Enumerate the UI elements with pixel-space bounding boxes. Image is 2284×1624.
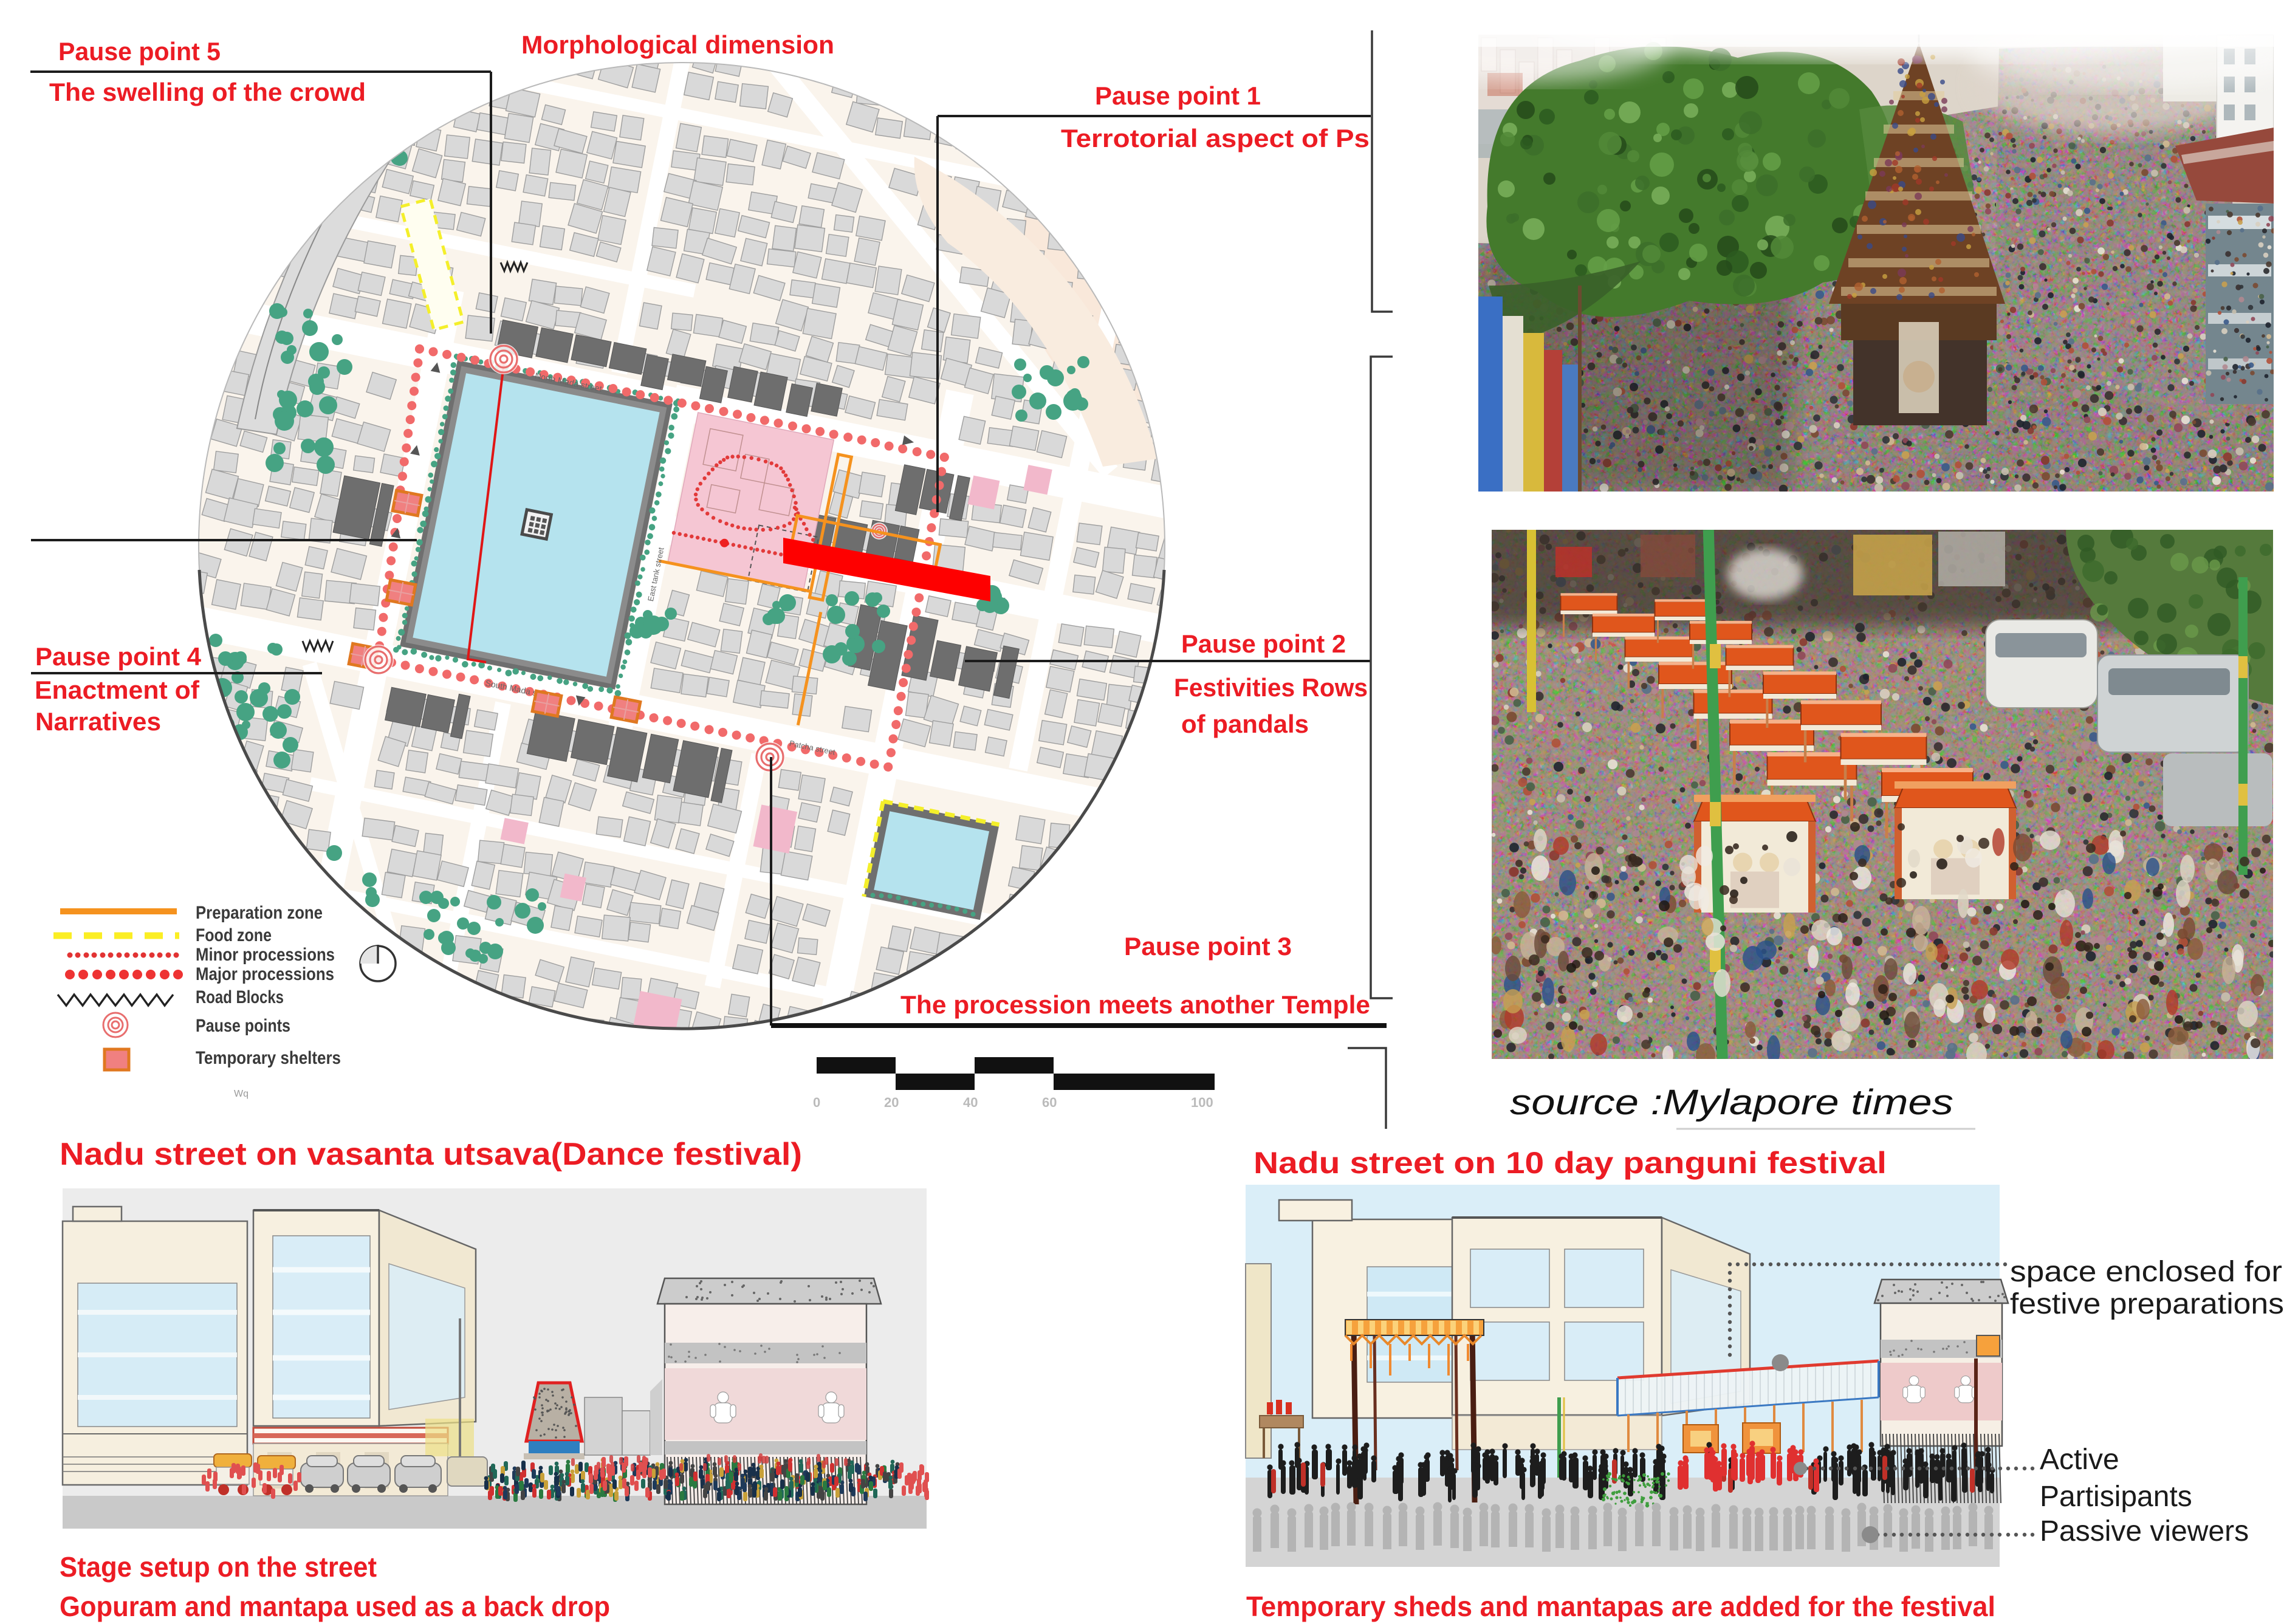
svg-text:Narratives: Narratives	[35, 707, 161, 736]
svg-text:60: 60	[1042, 1095, 1057, 1110]
svg-text:Wq: Wq	[234, 1089, 249, 1099]
svg-text:Pause points: Pause points	[196, 1016, 290, 1036]
svg-text:of pandals: of pandals	[1181, 710, 1309, 738]
svg-text:Major processions: Major processions	[196, 964, 334, 984]
svg-text:Pause point 2: Pause point 2	[1181, 629, 1346, 658]
svg-text:Morphological dimension: Morphological dimension	[521, 30, 834, 59]
svg-text:20: 20	[884, 1095, 899, 1110]
svg-text:Pause point 4: Pause point 4	[35, 642, 202, 671]
svg-text:Preparation zone: Preparation zone	[196, 903, 323, 923]
svg-text:source :Mylapore times: source :Mylapore times	[1510, 1083, 1953, 1122]
svg-text:The procession meets another T: The procession meets another Temple	[900, 990, 1370, 1019]
svg-text:Festivities Rows: Festivities Rows	[1174, 673, 1368, 702]
svg-text:Temporary shelters: Temporary shelters	[196, 1048, 341, 1068]
svg-text:Enactment of: Enactment of	[35, 676, 200, 704]
svg-text:Pause point 5: Pause point 5	[58, 37, 221, 66]
svg-text:Terrotorial aspect of Ps: Terrotorial aspect of Ps	[1061, 124, 1370, 152]
svg-text:Food zone: Food zone	[196, 925, 272, 945]
svg-text:100: 100	[1191, 1095, 1213, 1110]
svg-text:Road Blocks: Road Blocks	[196, 987, 284, 1007]
svg-text:The swelling of the crowd: The swelling of the crowd	[49, 78, 366, 106]
svg-text:Minor processions: Minor processions	[196, 945, 335, 965]
svg-text:Nadu street on vasanta utsava(: Nadu street on vasanta utsava(Dance fest…	[60, 1137, 802, 1172]
svg-text:Pause point 3: Pause point 3	[1124, 932, 1292, 961]
svg-text:0: 0	[813, 1095, 820, 1110]
svg-text:40: 40	[963, 1095, 978, 1110]
svg-text:Pause point 1: Pause point 1	[1095, 81, 1261, 110]
